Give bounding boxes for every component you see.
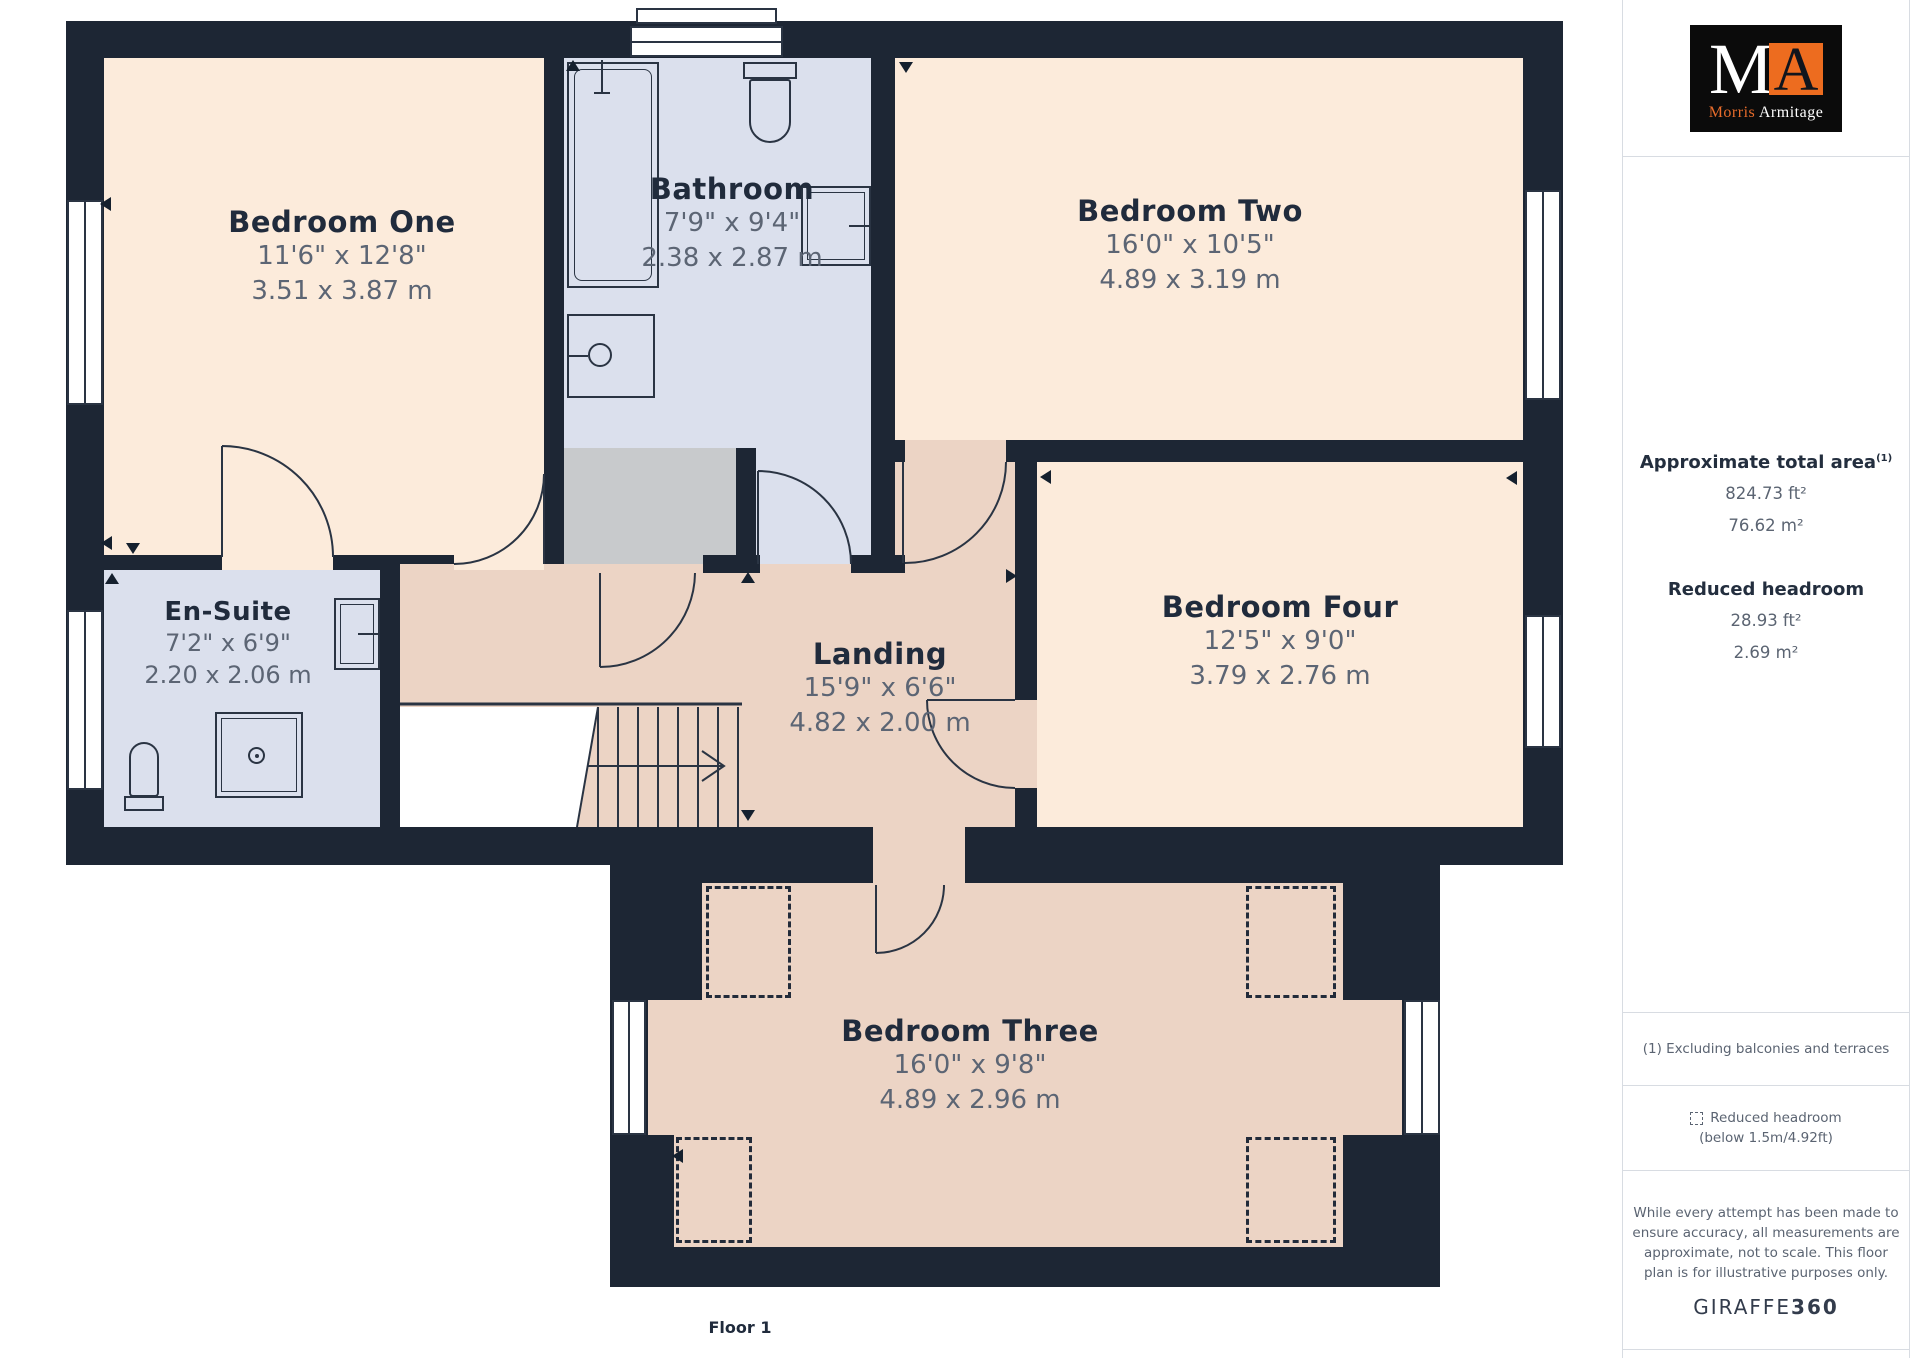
- room-dims-metric: 2.20 x 2.06 m: [144, 659, 311, 691]
- door-bathroom: [758, 471, 851, 564]
- room-dims-imperial: 11'6" x 12'8": [228, 239, 455, 274]
- room-name: Bedroom Two: [1077, 194, 1303, 228]
- bathtub-tap-icon: [594, 60, 610, 93]
- door-en-suite: [222, 446, 333, 557]
- room-label-bedroom-two: Bedroom Two 16'0" x 10'5" 4.89 x 3.19 m: [1077, 194, 1303, 298]
- room-name: Bedroom One: [228, 205, 455, 239]
- room-dims-metric: 3.79 x 2.76 m: [1162, 659, 1399, 694]
- door-bedroom-two: [903, 462, 1006, 563]
- room-dims-metric: 4.89 x 3.19 m: [1077, 263, 1303, 298]
- room-dims-imperial: 16'0" x 9'8": [841, 1048, 1099, 1083]
- room-label-bedroom-one: Bedroom One 11'6" x 12'8" 3.51 x 3.87 m: [228, 205, 455, 309]
- room-label-landing: Landing 15'9" x 6'6" 4.82 x 2.00 m: [789, 637, 970, 741]
- door-cupboard: [600, 573, 695, 667]
- room-dims-metric: 2.38 x 2.87 m: [641, 241, 822, 276]
- room-name: Bedroom Three: [841, 1014, 1099, 1048]
- room-dims-metric: 4.82 x 2.00 m: [789, 706, 970, 741]
- door-bedroom-three: [876, 885, 944, 953]
- room-name: Bathroom: [641, 172, 822, 206]
- room-dims-imperial: 7'9" x 9'4": [641, 206, 822, 241]
- room-dims-imperial: 16'0" x 10'5": [1077, 228, 1303, 263]
- floor-label: Floor 1: [709, 1318, 772, 1337]
- stairs-direction-arrow-icon: [588, 751, 724, 781]
- room-label-en-suite: En-Suite 7'2" x 6'9" 2.20 x 2.06 m: [144, 597, 311, 691]
- room-label-bedroom-three: Bedroom Three 16'0" x 9'8" 4.89 x 2.96 m: [841, 1014, 1099, 1118]
- room-dims-imperial: 12'5" x 9'0": [1162, 624, 1399, 659]
- room-label-bedroom-four: Bedroom Four 12'5" x 9'0" 3.79 x 2.76 m: [1162, 590, 1399, 694]
- door-bedroom-one: [454, 474, 544, 564]
- page: Bedroom One 11'6" x 12'8" 3.51 x 3.87 m …: [0, 0, 1920, 1358]
- room-label-bathroom: Bathroom 7'9" x 9'4" 2.38 x 2.87 m: [641, 172, 822, 276]
- room-dims-metric: 3.51 x 3.87 m: [228, 274, 455, 309]
- room-dims-imperial: 15'9" x 6'6": [789, 671, 970, 706]
- room-dims-imperial: 7'2" x 6'9": [144, 627, 311, 659]
- room-name: Bedroom Four: [1162, 590, 1399, 624]
- room-name: En-Suite: [144, 597, 311, 627]
- room-dims-metric: 4.89 x 2.96 m: [841, 1083, 1099, 1118]
- room-name: Landing: [789, 637, 970, 671]
